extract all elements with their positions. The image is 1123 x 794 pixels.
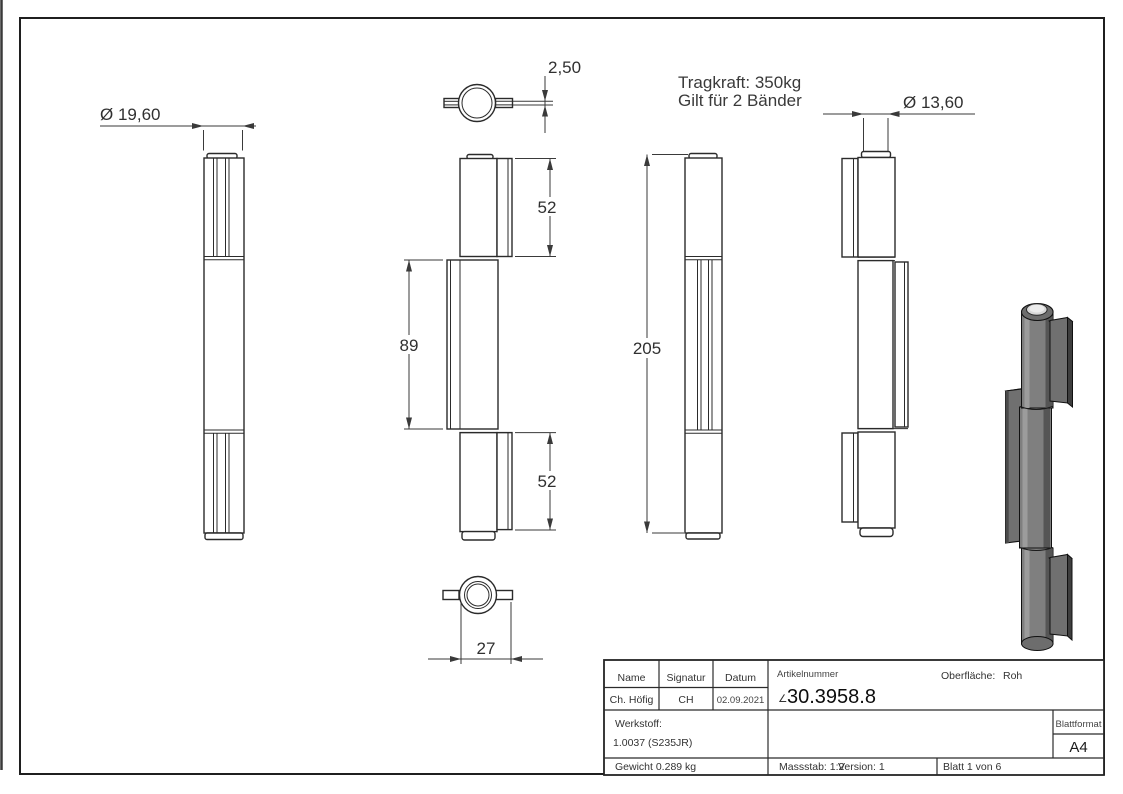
massstab-value: Massstab: 1:2 [779,761,845,773]
dim-knuckle-diameter: Ø 19,60 [100,105,256,151]
dim-total-height: 205 [629,155,688,534]
dim-pin-diameter: Ø 13,60 [823,93,975,151]
werkstoff-value: 1.0037 (S235JR) [613,737,692,749]
blattformat-value: A4 [1069,739,1087,756]
dim-pin-diameter-text: Ø 13,60 [903,93,964,112]
drawing-canvas: Ø 19,60 2,50 [0,0,1123,794]
view-bottom [443,577,513,614]
version-value: Version: 1 [838,761,885,773]
dim-knuckle-top: 52 [515,159,561,257]
werkstoff-label: Werkstoff: [615,718,662,730]
load-note-line2: Gilt für 2 Bänder [678,91,802,110]
dim-leaf-height-text: 89 [400,336,419,355]
name-value: Ch. Höfig [610,694,654,706]
dim-knuckle-top-text: 52 [538,198,557,217]
dim-tab-thickness: 2,50 [513,58,581,133]
artikelnummer-prefix: ∠ [778,693,787,705]
dim-total-height-text: 205 [633,339,661,358]
dim-leaf-height: 89 [395,260,443,429]
signatur-label: Signatur [666,672,706,684]
name-label: Name [617,672,645,684]
view-side [842,152,908,537]
load-note-line1: Tragkraft: 350kg [678,73,801,92]
view-rear [204,154,244,540]
blatt-value: Blatt 1 von 6 [943,761,1002,773]
view-top [444,85,513,122]
dim-leaf-width-text: 27 [477,639,496,658]
dim-knuckle-diameter-text: Ø 19,60 [100,105,161,124]
oberflaeche-label: Oberfläche: [941,670,995,682]
signatur-value: CH [678,694,693,706]
blattformat-label: Blattformat [1056,719,1102,730]
dim-knuckle-bottom-text: 52 [538,472,557,491]
artikelnummer-label: Artikelnummer [777,669,838,680]
datum-label: Datum [725,672,756,684]
gewicht-value: Gewicht 0.289 kg [615,761,696,773]
oberflaeche-value: Roh [1003,670,1022,682]
dim-tab-thickness-text: 2,50 [548,58,581,77]
view-3d [1006,304,1073,651]
artikelnummer-value: 30.3958.8 [787,686,876,708]
load-note: Tragkraft: 350kg Gilt für 2 Bänder [678,73,802,110]
datum-value: 02.09.2021 [717,695,765,706]
dim-knuckle-bottom: 52 [515,433,561,530]
view-front [447,155,512,541]
view-front-rotated [685,154,722,540]
title-block: Name Signatur Datum Ch. Höfig CH 02.09.2… [604,660,1104,775]
drawing-sheet: Ø 19,60 2,50 [0,0,1123,794]
